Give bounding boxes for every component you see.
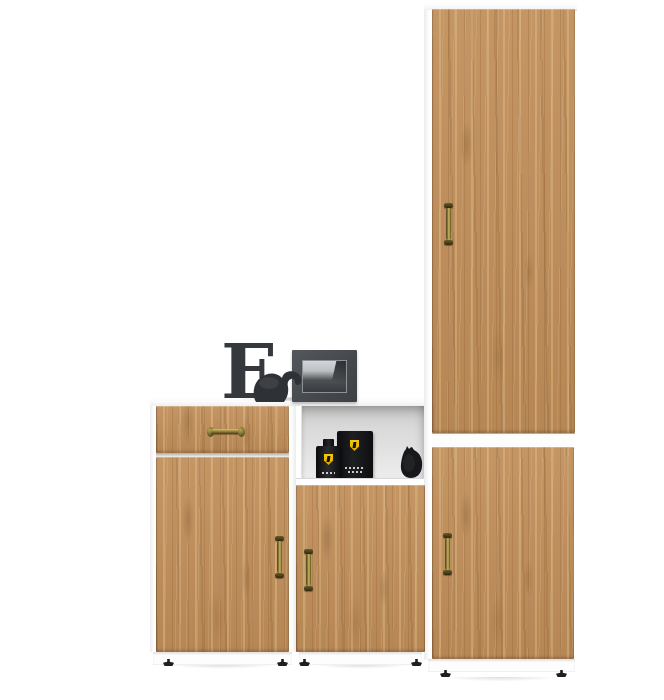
tall-wardrobe-top-door — [432, 9, 575, 433]
framed-photo — [302, 360, 347, 393]
bottle-label-text — [322, 472, 335, 474]
handle-cap — [444, 240, 453, 245]
left-chest-drawer-handle — [207, 426, 245, 438]
handle-spindle — [446, 208, 451, 240]
elephant-figurine — [251, 361, 304, 402]
left-chest-door — [156, 457, 289, 652]
left-chest-floor-shadow — [152, 665, 294, 670]
handle-spindle — [445, 538, 450, 570]
handle-cap — [304, 586, 313, 591]
ferrari-shield-icon — [350, 440, 359, 451]
handle-spindle — [277, 541, 282, 573]
handle-bar — [211, 429, 241, 434]
tall-wardrobe-floor-shadow — [424, 677, 577, 683]
perfume-box — [337, 431, 373, 479]
left-chest-door-handle — [275, 536, 284, 578]
box-label-text — [348, 471, 362, 473]
middle-unit-door-handle — [304, 549, 313, 591]
bottle-body — [316, 446, 341, 479]
handle-spindle — [306, 554, 311, 586]
tall-wardrobe-plinth — [428, 659, 575, 672]
middle-unit-plinth — [299, 652, 422, 665]
left-chest-plinth — [153, 652, 292, 665]
perfume-bottle — [316, 439, 341, 479]
tall-wardrobe-left-stile — [424, 10, 432, 660]
box-label-text — [345, 467, 365, 469]
tall-wardrobe-bottom-door — [432, 447, 574, 659]
handle-cap — [275, 573, 284, 578]
tall-wardrobe-bottom-door-handle — [443, 533, 452, 575]
tall-wardrobe-top-door-handle — [444, 203, 453, 245]
middle-unit-door — [296, 485, 425, 652]
handle-finial — [238, 427, 245, 437]
product-photo-scene: E — [0, 0, 664, 700]
ferrari-shield-icon — [324, 454, 333, 465]
middle-unit-floor-shadow — [298, 665, 426, 670]
handle-cap — [443, 570, 452, 575]
photo-cliff — [331, 361, 346, 383]
left-chest-right-stile — [289, 406, 296, 652]
bird-figurine — [399, 443, 425, 479]
